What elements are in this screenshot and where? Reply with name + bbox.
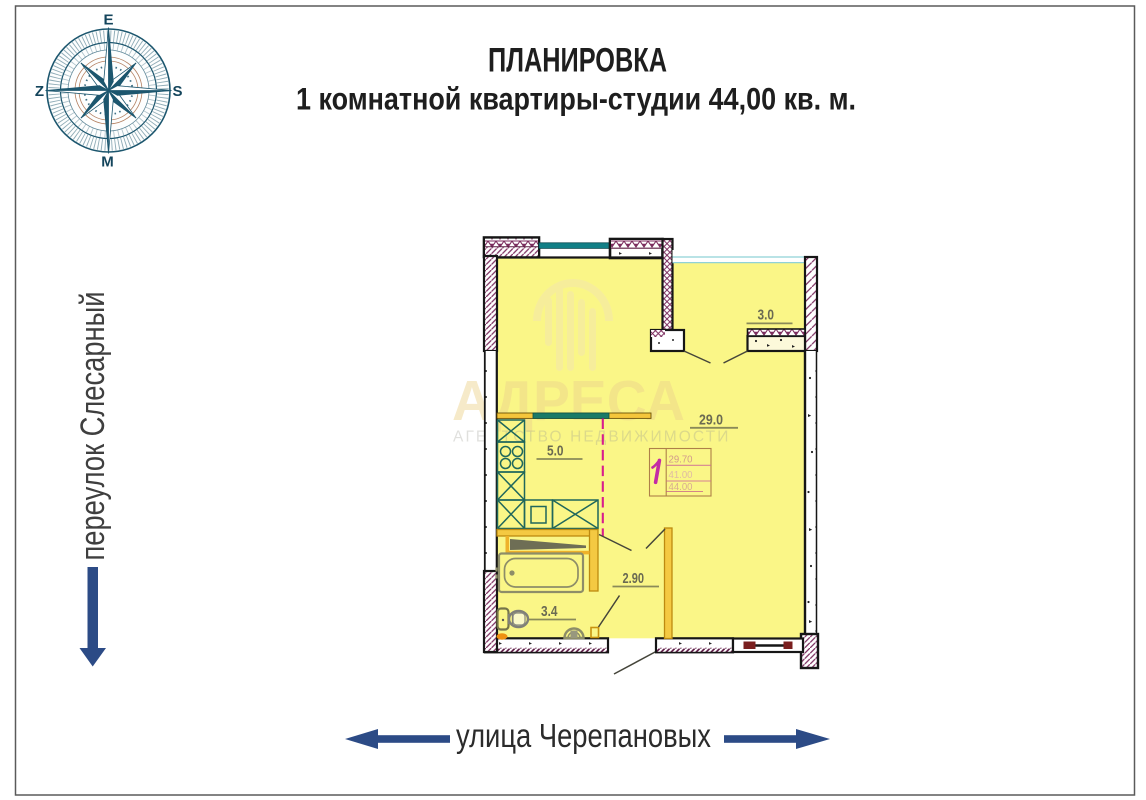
- svg-text:1 комнатной квартиры-студии 44: 1 комнатной квартиры-студии 44,00 кв. м.: [296, 81, 856, 117]
- svg-text:3.0: 3.0: [758, 307, 775, 324]
- svg-text:M: M: [101, 154, 114, 171]
- svg-text:41.00: 41.00: [669, 470, 693, 481]
- svg-text:Z: Z: [35, 83, 44, 100]
- svg-text:29.70: 29.70: [669, 455, 693, 466]
- svg-text:44.00: 44.00: [669, 482, 693, 493]
- svg-text:S: S: [172, 83, 182, 100]
- svg-text:улица Черепановых: улица Черепановых: [456, 717, 711, 754]
- svg-text:3.4: 3.4: [541, 603, 558, 620]
- svg-text:E: E: [103, 12, 113, 29]
- svg-text:5.0: 5.0: [547, 443, 564, 460]
- svg-text:2.90: 2.90: [623, 570, 645, 587]
- svg-text:ПЛАНИРОВКА: ПЛАНИРОВКА: [488, 42, 667, 80]
- svg-text:переулок Слесарный: переулок Слесарный: [74, 292, 112, 561]
- svg-text:29.0: 29.0: [699, 412, 723, 429]
